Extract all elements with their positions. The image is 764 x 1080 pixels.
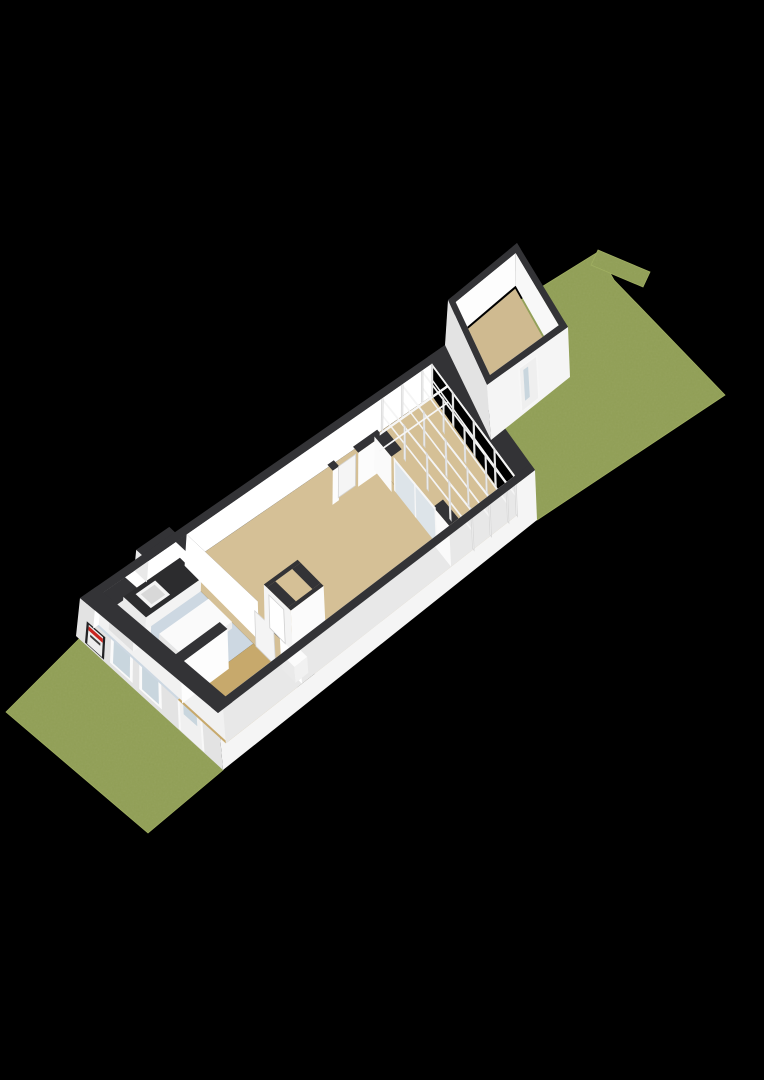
floorplan-3d-view <box>0 0 764 1080</box>
sunroom-partition-2-post-2 <box>445 439 447 477</box>
sunroom-glass-wall-post-1 <box>452 390 454 426</box>
sunroom-partition-1-post-0 <box>381 397 383 431</box>
sunroom-glass-wall-post-0 <box>431 362 433 396</box>
sunroom-partition-2-post-0 <box>401 383 403 417</box>
sunroom-partition-3-post-0 <box>421 369 423 403</box>
floorplan-canvas <box>0 0 764 1080</box>
sunroom-partition-3-post-2 <box>464 425 466 463</box>
sunroom-partition-1-post-1 <box>404 425 406 461</box>
sunroom-glass-wall-post-2 <box>473 418 475 456</box>
sunroom-partition-1-post-2 <box>426 453 428 491</box>
sunroom-partition-2-post-1 <box>423 411 425 447</box>
sunroom-partition-3-post-1 <box>443 397 445 433</box>
